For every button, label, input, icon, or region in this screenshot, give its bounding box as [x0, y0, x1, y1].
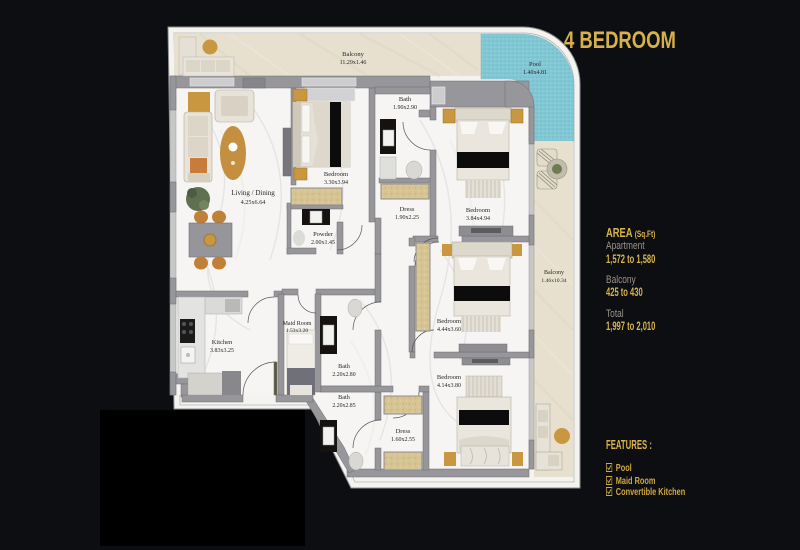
- svg-text:4.44x3.60: 4.44x3.60: [437, 327, 461, 333]
- svg-text:3.84x4.94: 3.84x4.94: [466, 216, 490, 222]
- svg-text:Bedroom: Bedroom: [324, 171, 348, 178]
- svg-text:Dress: Dress: [396, 428, 411, 435]
- svg-text:4.25x6.64: 4.25x6.64: [241, 199, 266, 206]
- svg-text:3.30x3.94: 3.30x3.94: [324, 180, 348, 186]
- svg-text:Bedroom: Bedroom: [437, 318, 461, 325]
- svg-text:Kitchen: Kitchen: [212, 339, 233, 346]
- svg-text:3.83x3.25: 3.83x3.25: [210, 348, 234, 354]
- svg-text:Maid Room: Maid Room: [283, 321, 312, 327]
- svg-text:1.40x4.81: 1.40x4.81: [523, 70, 547, 76]
- svg-text:Living / Dining: Living / Dining: [231, 189, 275, 197]
- svg-text:11.29x1.46: 11.29x1.46: [340, 60, 367, 66]
- svg-text:Bedroom: Bedroom: [466, 207, 490, 214]
- svg-text:Bath: Bath: [338, 363, 351, 370]
- svg-text:2.20x2.85: 2.20x2.85: [332, 403, 355, 409]
- svg-text:Powder: Powder: [313, 231, 334, 238]
- svg-text:1.46x10.34: 1.46x10.34: [541, 278, 566, 284]
- svg-text:1.90x2.90: 1.90x2.90: [393, 105, 417, 111]
- svg-text:Balcony: Balcony: [342, 51, 364, 58]
- svg-text:Bath: Bath: [338, 394, 351, 401]
- svg-text:Bath: Bath: [399, 96, 412, 103]
- svg-text:Bedroom: Bedroom: [437, 374, 461, 381]
- svg-text:Pool: Pool: [529, 61, 541, 68]
- svg-text:4.14x3.80: 4.14x3.80: [437, 383, 461, 389]
- svg-text:Dress: Dress: [400, 206, 415, 213]
- svg-text:1.60x2.55: 1.60x2.55: [391, 437, 415, 443]
- svg-text:1.90x2.25: 1.90x2.25: [395, 215, 419, 221]
- svg-text:Balcony: Balcony: [544, 270, 564, 276]
- svg-text:2.00x1.45: 2.00x1.45: [311, 240, 335, 246]
- svg-text:2.20x2.80: 2.20x2.80: [332, 372, 355, 378]
- svg-text:1.53x3.20: 1.53x3.20: [286, 328, 309, 334]
